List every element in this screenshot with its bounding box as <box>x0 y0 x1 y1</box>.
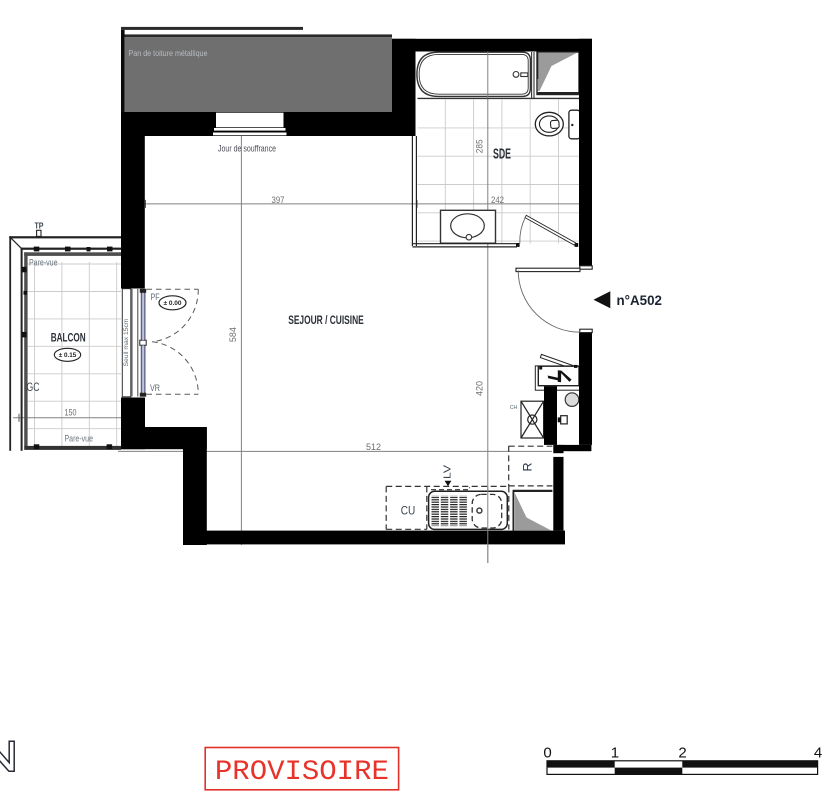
svg-text:2: 2 <box>678 745 686 762</box>
svg-text:BALCON: BALCON <box>51 331 86 345</box>
svg-text:285: 285 <box>474 139 484 153</box>
svg-text:PF: PF <box>151 292 160 302</box>
svg-text:GC: GC <box>27 382 40 394</box>
svg-text:PROVISOIRE: PROVISOIRE <box>215 757 389 788</box>
svg-text:n°A502: n°A502 <box>617 293 663 308</box>
svg-text:1: 1 <box>611 745 619 762</box>
svg-text:Seuil max 15cm: Seuil max 15cm <box>124 319 130 367</box>
svg-text:Pan de toiture métallique: Pan de toiture métallique <box>129 48 208 58</box>
svg-text:242: 242 <box>491 195 504 205</box>
svg-text:420: 420 <box>475 381 485 396</box>
svg-text:Jour de souffrance: Jour de souffrance <box>218 144 276 154</box>
svg-text:± 0.00: ± 0.00 <box>164 300 183 307</box>
svg-text:584: 584 <box>228 327 238 342</box>
svg-text:SDE: SDE <box>493 147 511 163</box>
svg-text:CU: CU <box>401 504 416 518</box>
svg-text:150: 150 <box>65 408 77 418</box>
svg-text:± 0.15: ± 0.15 <box>59 352 77 359</box>
svg-text:VR: VR <box>150 383 160 393</box>
svg-text:CH: CH <box>510 405 518 411</box>
svg-text:R: R <box>521 462 535 471</box>
svg-text:SEJOUR / CUISINE: SEJOUR / CUISINE <box>288 313 364 327</box>
svg-text:512: 512 <box>366 442 381 452</box>
svg-text:Pare-vue: Pare-vue <box>29 258 58 268</box>
svg-text:0: 0 <box>543 745 551 762</box>
svg-text:LV: LV <box>442 465 454 479</box>
svg-text:4: 4 <box>814 745 822 762</box>
svg-text:397: 397 <box>272 195 285 205</box>
svg-text:TP: TP <box>35 221 44 231</box>
svg-text:Pare-vue: Pare-vue <box>65 433 94 443</box>
